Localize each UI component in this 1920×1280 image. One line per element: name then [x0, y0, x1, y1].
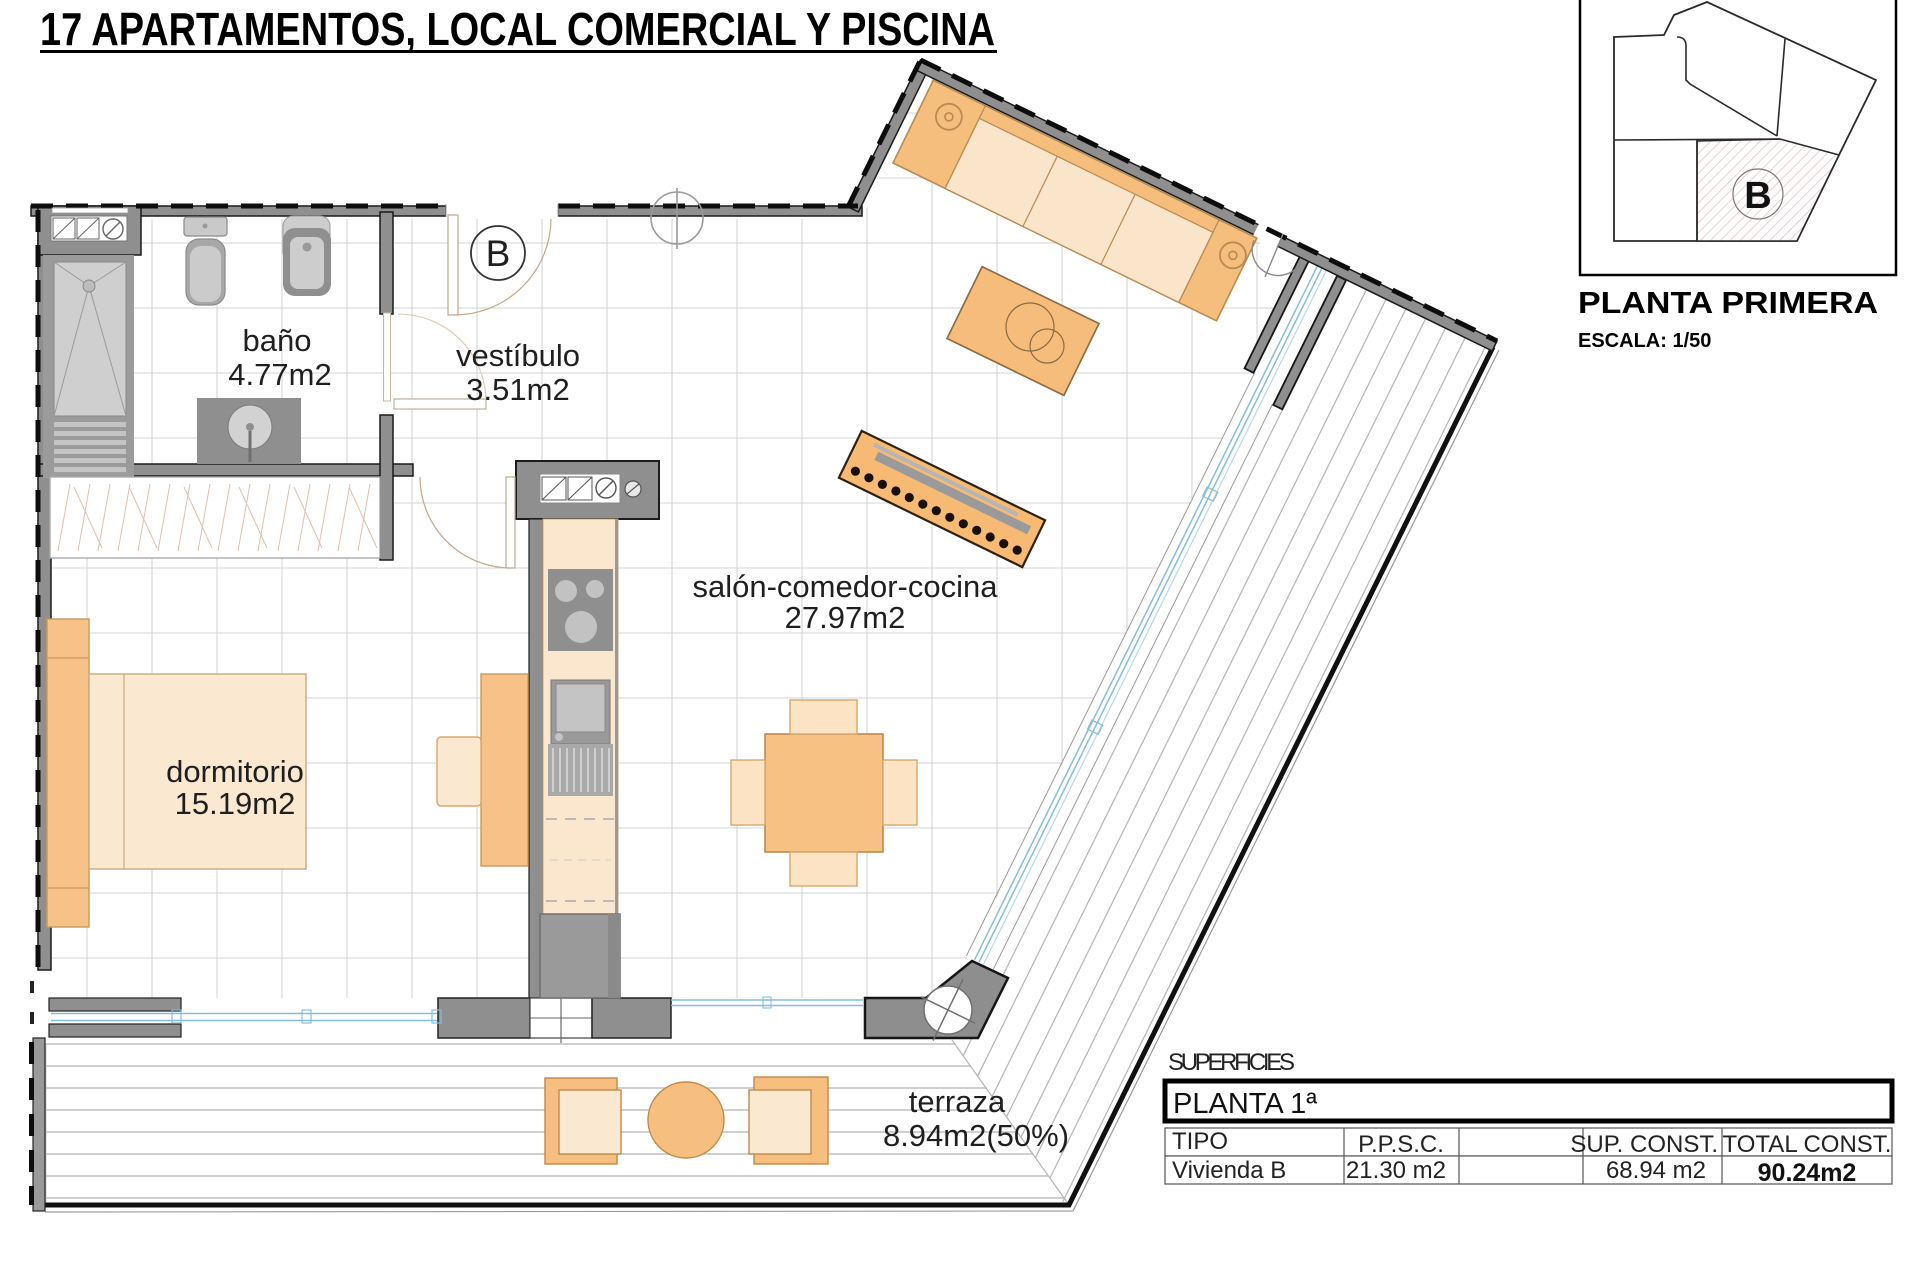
- svg-text:vestíbulo: vestíbulo: [456, 338, 580, 373]
- svg-text:ESCALA: 1/50: ESCALA: 1/50: [1578, 330, 1711, 352]
- svg-text:68.94 m2: 68.94 m2: [1606, 1157, 1706, 1184]
- svg-text:dormitorio: dormitorio: [166, 754, 304, 789]
- svg-text:baño: baño: [243, 323, 312, 358]
- svg-text:terraza: terraza: [909, 1084, 1006, 1119]
- svg-text:15.19m2: 15.19m2: [175, 786, 296, 821]
- svg-text:27.97m2: 27.97m2: [785, 600, 906, 635]
- svg-text:PLANTA PRIMERA: PLANTA PRIMERA: [1578, 285, 1878, 320]
- svg-text:SUP. CONST.: SUP. CONST.: [1570, 1131, 1718, 1158]
- svg-text:90.24m2: 90.24m2: [1758, 1159, 1857, 1187]
- svg-text:4.77m2: 4.77m2: [228, 357, 331, 392]
- svg-text:salón-comedor-cocina: salón-comedor-cocina: [693, 569, 999, 604]
- svg-text:TOTAL CONST.: TOTAL CONST.: [1723, 1131, 1892, 1158]
- svg-text:3.51m2: 3.51m2: [466, 372, 569, 407]
- svg-text:TIPO: TIPO: [1172, 1128, 1228, 1155]
- svg-text:SUPERFICIES: SUPERFICIES: [1168, 1049, 1295, 1076]
- svg-text:21.30 m2: 21.30 m2: [1346, 1157, 1446, 1184]
- svg-text:P.P.S.C.: P.P.S.C.: [1358, 1131, 1444, 1158]
- svg-text:B: B: [486, 233, 511, 274]
- svg-text:8.94m2(50%): 8.94m2(50%): [883, 1118, 1069, 1153]
- svg-text:B: B: [1744, 175, 1771, 217]
- svg-text:17 APARTAMENTOS, LOCAL COMERCI: 17 APARTAMENTOS, LOCAL COMERCIAL Y PISCI…: [40, 3, 995, 55]
- svg-text:Vivienda B: Vivienda B: [1172, 1157, 1286, 1184]
- svg-text:PLANTA 1ª: PLANTA 1ª: [1173, 1088, 1317, 1120]
